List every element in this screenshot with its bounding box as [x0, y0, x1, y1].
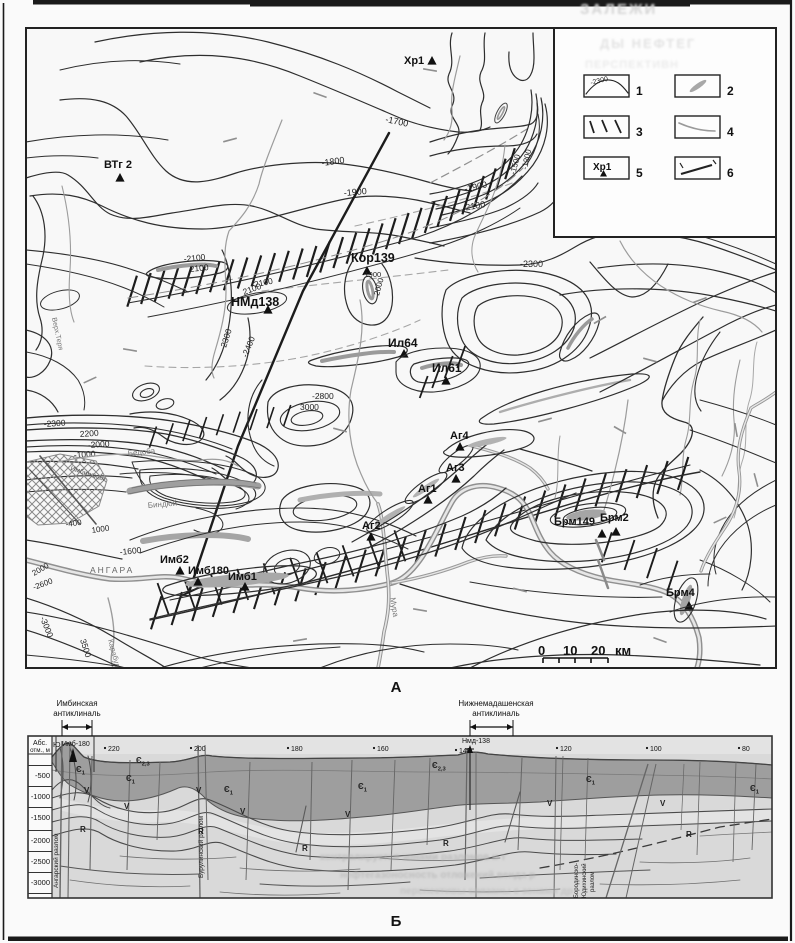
svg-text:-1000: -1000 — [31, 792, 50, 801]
svg-text:180: 180 — [291, 746, 303, 753]
svg-text:2: 2 — [727, 84, 734, 98]
svg-text:Имб-180: Имб-180 — [62, 740, 90, 748]
svg-text:Имб180: Имб180 — [188, 565, 229, 577]
svg-text:3000: 3000 — [300, 402, 319, 412]
svg-text:200: 200 — [194, 746, 206, 753]
svg-text:80: 80 — [742, 746, 750, 753]
svg-text:Ангарский разлом: Ангарский разлом — [52, 833, 60, 888]
svg-text:V: V — [196, 786, 202, 795]
svg-text:6: 6 — [727, 166, 734, 180]
svg-text:2100: 2100 — [189, 262, 209, 274]
svg-text:ЗАЛЕЖИ: ЗАЛЕЖИ — [580, 1, 657, 18]
svg-text:V: V — [124, 802, 130, 811]
svg-text:Бурулинский разлом: Бурулинский разлом — [197, 815, 205, 878]
svg-text:R: R — [443, 839, 449, 848]
svg-text:Нмд-138: Нмд-138 — [462, 738, 490, 745]
svg-text:перспективы связаны с зонами д: перспективы связаны с зонами др — [400, 886, 573, 897]
svg-text:антиклиналь: антиклиналь — [472, 709, 519, 718]
svg-text:Нижнемадашенская: Нижнемадашенская — [458, 699, 533, 708]
svg-text:Имб1: Имб1 — [228, 571, 257, 583]
svg-text:Кор139: Кор139 — [351, 251, 395, 265]
svg-text:ВТг 2: ВТг 2 — [104, 159, 132, 171]
svg-text:Имб2: Имб2 — [160, 554, 189, 566]
svg-text:НМд138: НМд138 — [231, 295, 279, 309]
svg-text:Аг4: Аг4 — [450, 430, 470, 442]
svg-text:Брм2: Брм2 — [600, 512, 629, 524]
svg-text:V: V — [84, 786, 90, 795]
svg-text:4: 4 — [727, 125, 734, 139]
svg-text:20: 20 — [591, 643, 605, 658]
svg-text:120: 120 — [560, 746, 572, 753]
svg-text:нефтегазоносность отложений ве: нефтегазоносность отложений венда р — [340, 869, 535, 881]
svg-text:Ил64: Ил64 — [388, 336, 418, 350]
svg-text:-1500: -1500 — [31, 813, 50, 822]
svg-text:10: 10 — [563, 643, 577, 658]
svg-text:Аг2: Аг2 — [362, 520, 381, 532]
svg-text:V: V — [240, 807, 246, 816]
svg-text:Аг3: Аг3 — [446, 462, 465, 474]
svg-text:Аг1: Аг1 — [418, 483, 437, 495]
svg-text:Абс.: Абс. — [33, 739, 47, 747]
svg-text:А: А — [391, 679, 402, 696]
svg-text:160: 160 — [377, 746, 389, 753]
svg-text:-2500: -2500 — [31, 857, 50, 866]
svg-text:Хр1: Хр1 — [404, 55, 424, 67]
svg-text:-3000: -3000 — [31, 878, 50, 887]
svg-text:контролируется зонами разломов: контролируется зонами разломов и т — [320, 852, 506, 863]
svg-text:Хр1: Хр1 — [593, 162, 612, 173]
svg-text:км: км — [615, 643, 631, 658]
svg-text:V: V — [547, 799, 553, 808]
svg-text:2200: 2200 — [79, 428, 99, 439]
svg-text:R: R — [302, 844, 308, 853]
svg-text:R: R — [80, 825, 86, 834]
svg-text:1: 1 — [636, 84, 643, 98]
svg-text:АНГАРА: АНГАРА — [90, 565, 134, 575]
svg-text:ДЫ НЕФТЕГ: ДЫ НЕФТЕГ — [600, 36, 696, 51]
svg-text:V: V — [345, 810, 351, 819]
svg-text:Бородинско-: Бородинско- — [574, 863, 580, 898]
svg-text:5: 5 — [636, 166, 643, 180]
svg-text:220: 220 — [108, 746, 120, 753]
svg-text:Брм149: Брм149 — [554, 516, 595, 528]
svg-text:V: V — [660, 799, 666, 808]
svg-text:0: 0 — [538, 643, 545, 658]
svg-text:отм., м: отм., м — [30, 747, 50, 754]
svg-text:100: 100 — [650, 746, 662, 753]
svg-text:-2800: -2800 — [312, 391, 334, 401]
svg-text:Брм4: Брм4 — [666, 587, 696, 599]
svg-text:ПЕРСПЕКТИВН: ПЕРСПЕКТИВН — [585, 59, 679, 71]
svg-text:антиклиналь: антиклиналь — [53, 709, 100, 718]
svg-text:R: R — [686, 830, 692, 839]
svg-text:разлом: разлом — [590, 872, 596, 892]
svg-text:Б: Б — [391, 913, 402, 930]
svg-text:Имбинская: Имбинская — [56, 699, 97, 708]
svg-text:Ю: Ю — [53, 740, 61, 749]
svg-text:3: 3 — [636, 125, 643, 139]
svg-text:-500: -500 — [35, 771, 50, 780]
svg-text:-2000: -2000 — [31, 836, 50, 845]
svg-text:Юдихинский: Юдихинский — [581, 863, 588, 898]
